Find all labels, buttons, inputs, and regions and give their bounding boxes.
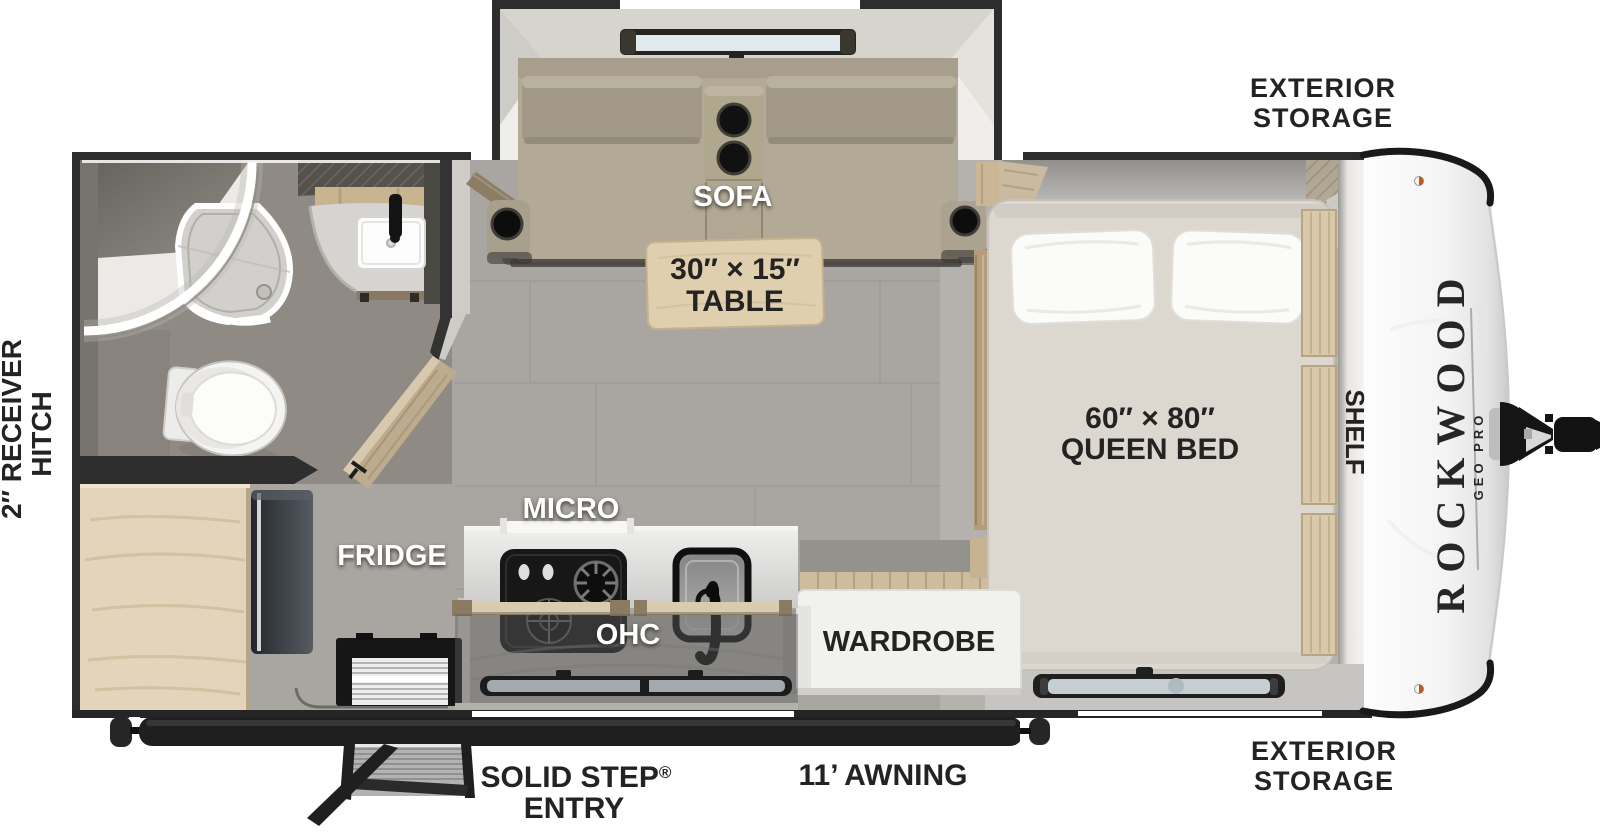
svg-text:GEO PRO: GEO PRO — [1471, 412, 1486, 501]
svg-text:STORAGE: STORAGE — [1253, 103, 1393, 133]
svg-text:HITCH: HITCH — [26, 391, 57, 477]
svg-text:TABLE: TABLE — [686, 285, 784, 318]
svg-text:2″ RECEIVER: 2″ RECEIVER — [0, 339, 27, 519]
svg-text:WARDROBE: WARDROBE — [823, 626, 995, 658]
svg-text:SOFA: SOFA — [694, 181, 773, 213]
svg-text:QUEEN BED: QUEEN BED — [1061, 433, 1239, 466]
svg-text:11’ AWNING: 11’ AWNING — [799, 759, 968, 792]
svg-text:EXTERIOR: EXTERIOR — [1250, 73, 1396, 103]
svg-text:OHC: OHC — [596, 619, 661, 651]
svg-text:ENTRY: ENTRY — [524, 792, 625, 825]
svg-text:SOLID STEP®: SOLID STEP® — [481, 761, 672, 794]
svg-text:FRIDGE: FRIDGE — [337, 540, 447, 572]
svg-text:60″ × 80″: 60″ × 80″ — [1085, 402, 1215, 435]
svg-text:MICRO: MICRO — [523, 493, 620, 525]
svg-text:STORAGE: STORAGE — [1254, 766, 1394, 796]
svg-text:ROCKWOOD: ROCKWOOD — [1428, 266, 1473, 613]
svg-text:EXTERIOR: EXTERIOR — [1251, 736, 1397, 766]
svg-text:30″ × 15″: 30″ × 15″ — [670, 253, 800, 286]
svg-text:SHELF: SHELF — [1340, 389, 1370, 474]
